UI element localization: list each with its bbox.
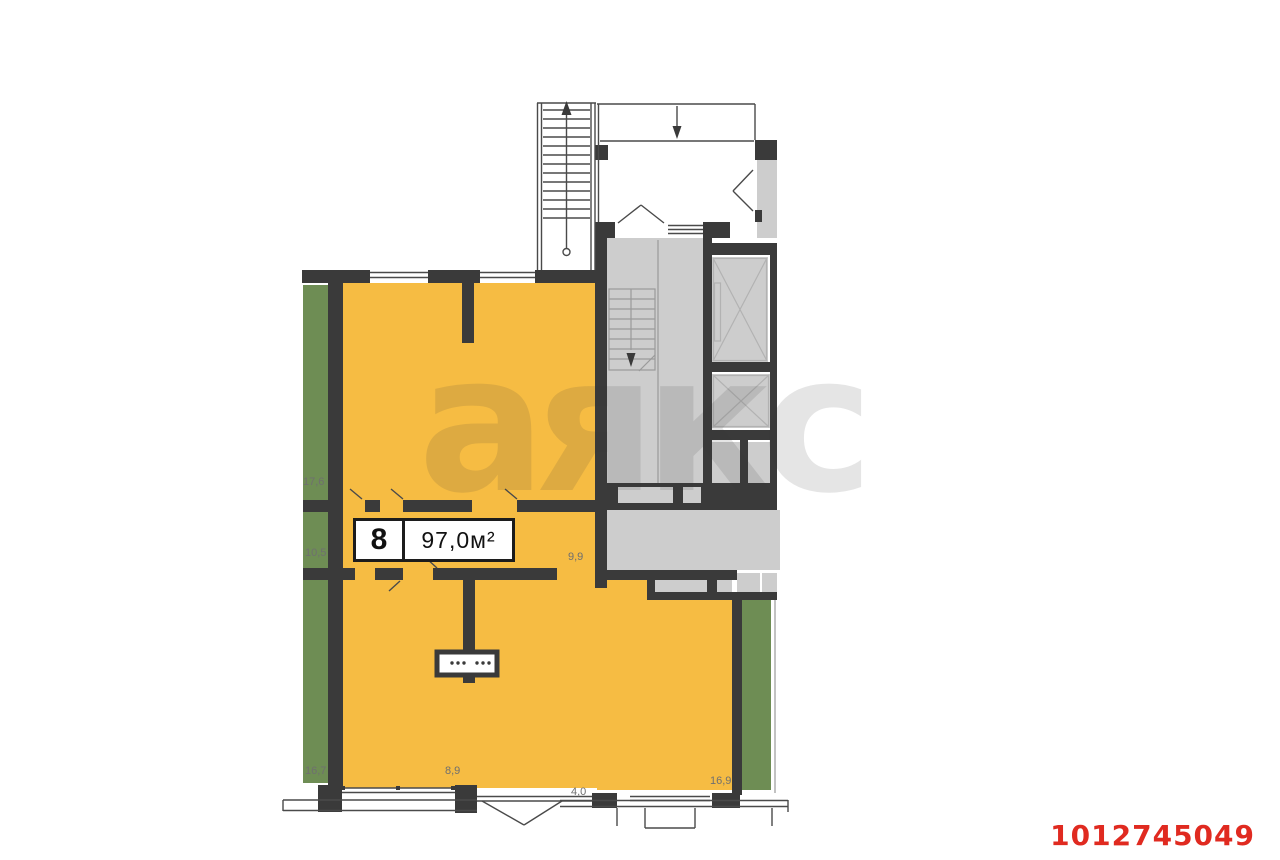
- floorplan-drawing: [0, 0, 1280, 860]
- neighbor-unit-right: [742, 600, 771, 790]
- vestibule-window: [668, 226, 703, 234]
- listing-id: 1012745049: [1050, 819, 1255, 852]
- down-arrow-icon: [673, 126, 682, 139]
- unit-area: 97,0м²: [402, 521, 512, 559]
- unit-label: 8 97,0м²: [353, 518, 515, 562]
- counter-symbol: [437, 652, 497, 675]
- door-swing-bottom: [618, 205, 664, 223]
- entrance-door: [477, 797, 592, 826]
- vestibule: [597, 104, 755, 234]
- floorplan-image: аякс 8 97,0м² 17,6 10,5 16,7 8,9 4,0 16,…: [0, 0, 1280, 860]
- dimension-label: 16,9: [710, 775, 731, 787]
- dimension-label: 16,7: [305, 765, 326, 777]
- dimension-label: 4,0: [571, 786, 586, 798]
- dimension-label: 10,5: [305, 547, 326, 559]
- neighbor-unit-left: [303, 285, 330, 783]
- dimension-label: 8,9: [445, 765, 460, 777]
- unit-number: 8: [356, 521, 402, 559]
- dimension-label: 9,9: [568, 551, 583, 563]
- door-swing-right: [733, 170, 753, 211]
- dimension-label: 17,6: [303, 476, 324, 488]
- exterior-staircase: [537, 101, 596, 270]
